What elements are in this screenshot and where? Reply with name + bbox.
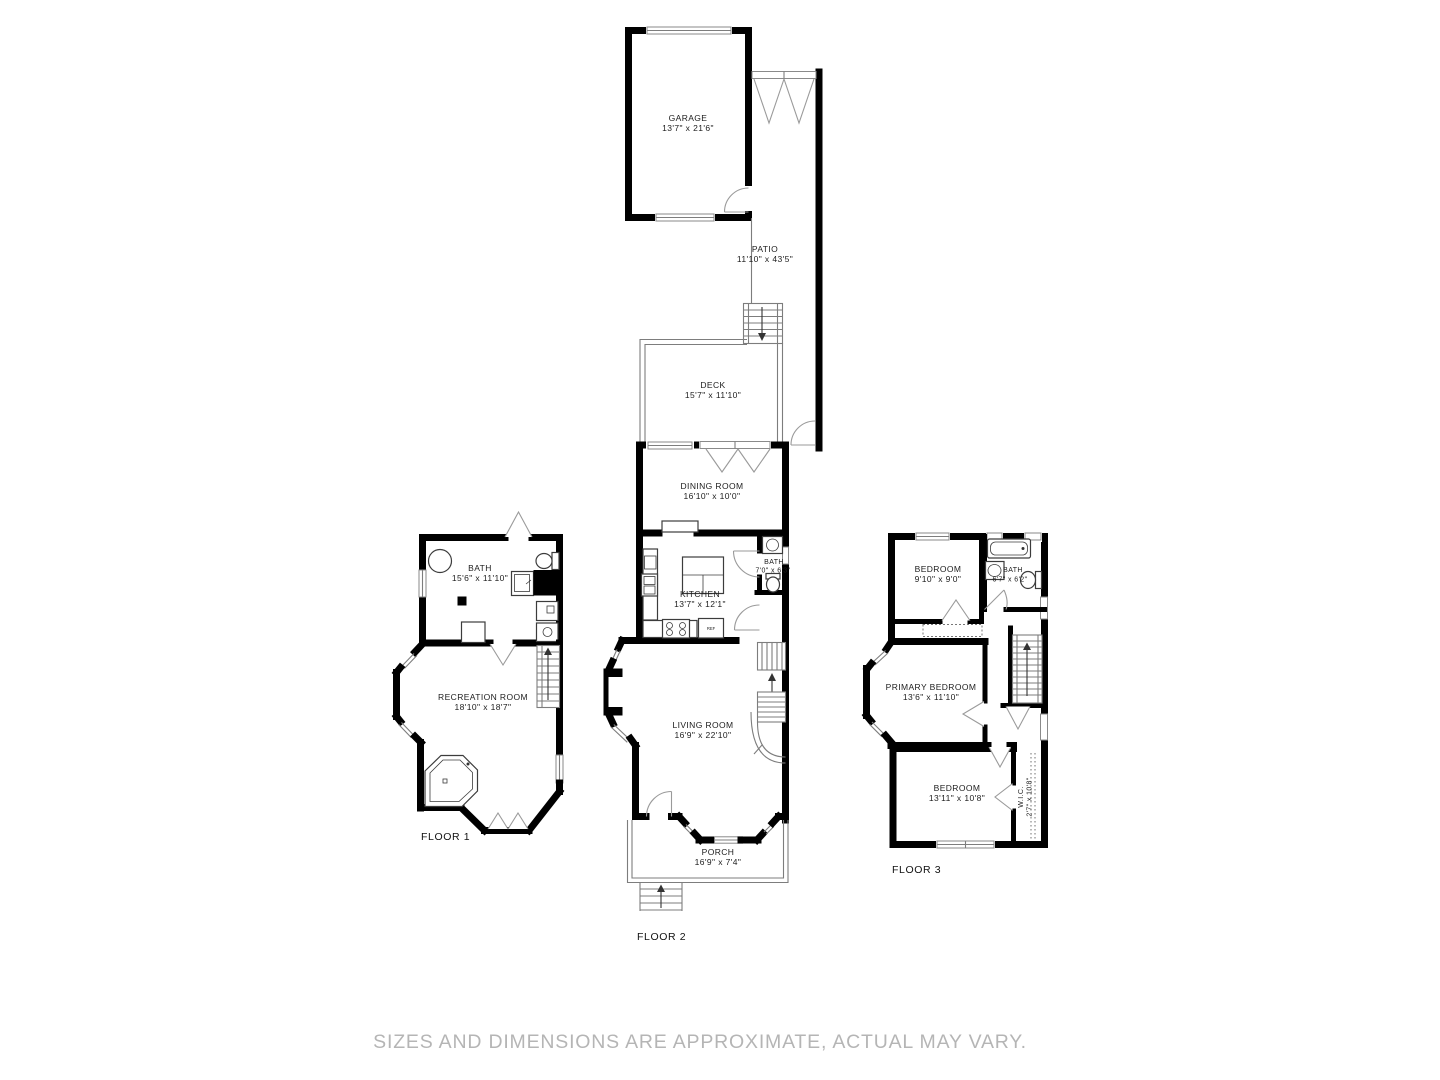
bathtub-icon (425, 756, 478, 807)
sink-icon (642, 574, 658, 596)
stairs-arrow-icon (768, 673, 776, 681)
door-swing (754, 79, 784, 123)
water-heater-icon (429, 550, 452, 573)
patio-dims: 11'10" x 43'5" (737, 254, 793, 264)
sideboard (662, 521, 698, 532)
deck-label: DECK (700, 380, 725, 390)
floor3-stairs (1003, 628, 1045, 729)
disclaimer-text: SIZES AND DIMENSIONS ARE APPROXIMATE, AC… (373, 1031, 1027, 1053)
recreation-label: RECREATION ROOM (438, 692, 528, 702)
floor-titles: FLOOR 1 FLOOR 2 FLOOR 3 (421, 831, 941, 943)
recreation-dims: 18'10" x 18'7" (455, 702, 512, 712)
door-swing (791, 421, 815, 445)
primary-label: PRIMARY BEDROOM (886, 682, 977, 692)
porch-label: PORCH (702, 847, 735, 857)
door-swing (735, 605, 760, 630)
toilet-icon (766, 574, 780, 593)
door-swing (963, 702, 984, 727)
floor2-title: FLOOR 2 (637, 931, 686, 943)
kitchen-dims: 13'7" x 12'1" (674, 599, 726, 609)
bedroom-top-label: BEDROOM (915, 564, 962, 574)
living-label: LIVING ROOM (672, 720, 733, 730)
shower-pan (462, 622, 486, 643)
floor1-title: FLOOR 1 (421, 831, 470, 843)
bath-lower-label: BATH (468, 563, 492, 573)
floorplan-svg: REF (0, 0, 1440, 1080)
fridge-label: REF (707, 626, 716, 631)
window-casement (508, 813, 528, 829)
door-swing (706, 449, 738, 472)
bathtub-icon (988, 539, 1031, 558)
door-swing (995, 784, 1013, 811)
garage-dims: 13'7" x 21'6" (662, 123, 714, 133)
door-swing (505, 512, 532, 537)
bath-main-label: BATH (764, 559, 784, 566)
floor3-title: FLOOR 3 (892, 864, 941, 876)
door-swing (738, 449, 770, 472)
kitchen-label: KITCHEN (680, 589, 720, 599)
sink-icon (512, 572, 534, 596)
door-swing (784, 79, 814, 123)
post (458, 597, 467, 606)
garage-label: GARAGE (669, 113, 708, 123)
fridge-icon: REF (699, 619, 724, 639)
bedroom-top-dims: 9'10" x 9'0" (915, 574, 962, 584)
window (1041, 714, 1048, 740)
door-swing (647, 792, 672, 817)
sink-icon (763, 537, 783, 554)
toilet-icon (536, 553, 559, 570)
patio-label: PATIO (752, 244, 778, 254)
room-labels: GARAGE 13'7" x 21'6" PATIO 11'10" x 43'5… (438, 113, 1033, 867)
door-swing (942, 600, 970, 621)
deck-dims: 15'7" x 11'10" (685, 390, 741, 400)
fireplace (604, 669, 623, 716)
bath-main (734, 533, 791, 630)
floorplan-canvas: REF (0, 0, 1440, 1080)
bedroom-bottom-dims: 13'11" x 10'8" (929, 793, 985, 803)
primary-dims: 13'6" x 11'10" (903, 692, 959, 702)
washer-icon (537, 602, 559, 621)
rec-stairs (537, 646, 560, 708)
bedroom-bottom-label: BEDROOM (934, 783, 981, 793)
door-swing (989, 747, 1011, 767)
bath-main-dims: 7'0" x 6'3" (755, 568, 790, 575)
dryer-icon (537, 623, 559, 642)
dining-dims: 16'10" x 10'0" (684, 491, 741, 501)
window-casement (488, 813, 508, 829)
bath-lower-dims: 15'6" x 11'10" (452, 573, 508, 583)
wic-dims: 2'7" x 10'8" (1027, 777, 1034, 816)
door-swing (490, 644, 516, 665)
bedroom-top (892, 537, 983, 637)
bath-lower (419, 512, 560, 665)
dining-label: DINING ROOM (681, 481, 744, 491)
bath-upper-dims: 6'7" x 6'2" (992, 577, 1027, 584)
porch-dims: 16'9" x 7'4" (695, 857, 742, 867)
living-room (604, 641, 786, 844)
stairs-arrow-icon (657, 885, 665, 893)
wic-label: W.I.C. (1018, 786, 1025, 807)
door-swing (985, 590, 1005, 610)
recreation-room (397, 643, 564, 831)
living-dims: 16'9" x 22'10" (675, 730, 732, 740)
bath-upper-label: BATH (1003, 567, 1023, 574)
living-stairs (751, 643, 786, 764)
door-swing (1006, 707, 1030, 730)
porch-stairs (640, 883, 682, 912)
shower (534, 570, 560, 596)
stove-icon (663, 620, 690, 639)
patio-stairs (744, 304, 783, 344)
closet-shelf (923, 625, 982, 637)
